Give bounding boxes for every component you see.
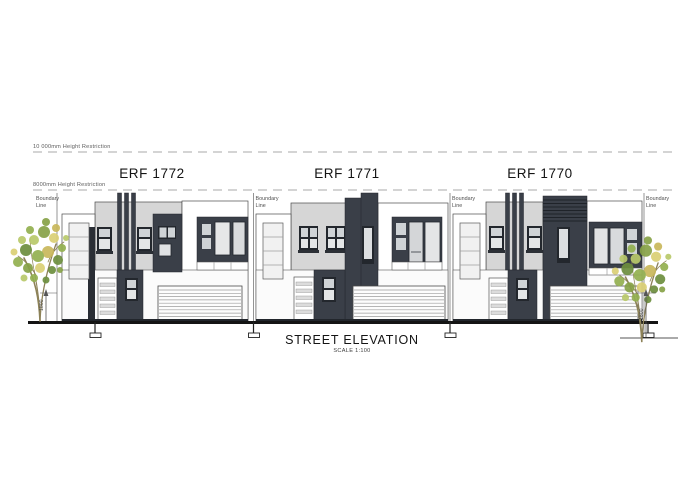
upper-window — [488, 226, 505, 253]
scale-label: SCALE 1:100 — [333, 348, 370, 354]
height-restriction-8000-label: 8000mm Height Restriction — [33, 182, 105, 188]
height-restriction-8000: 8000mm Height Restriction — [33, 182, 672, 190]
height-restriction-10000: 10 000mm Height Restriction — [33, 144, 672, 152]
boundary-line-label: Boundary — [452, 196, 475, 202]
boundary-peg — [249, 322, 260, 338]
erf-label-1770: ERF 1770 — [507, 166, 573, 181]
ground-floor-panel — [314, 270, 345, 321]
garage-door — [158, 286, 242, 320]
dimension-left: 1800 — [39, 289, 57, 321]
charcoal-feature-panel — [153, 214, 182, 272]
entry-door — [489, 278, 508, 321]
tall-window — [263, 223, 283, 279]
entry-door — [98, 278, 117, 321]
garage-door — [353, 286, 445, 320]
boundary-line-right: Boundary Line — [644, 193, 669, 332]
title-block: STREET ELEVATION SCALE 1:100 — [285, 333, 419, 354]
window-box — [197, 217, 248, 270]
boundary-line-label: Line — [452, 203, 462, 209]
garage-door — [550, 286, 638, 320]
ground-floor-panel — [508, 270, 537, 321]
unit-erf-1770 — [453, 193, 642, 323]
upper-window-pair — [298, 226, 319, 253]
upper-window — [136, 227, 153, 254]
upper-window-pair — [325, 226, 346, 253]
erf-label-1772: ERF 1772 — [119, 166, 185, 181]
vertical-cladding-stripes — [506, 193, 524, 270]
window-box — [392, 217, 442, 270]
boundary-peg — [445, 322, 456, 338]
height-restriction-10000-label: 10 000mm Height Restriction — [33, 144, 111, 150]
dimension-label: 1800 — [39, 299, 45, 311]
boundary-line-label: Boundary — [256, 196, 279, 202]
boundary-line-label: Line — [646, 203, 656, 209]
elevation-drawing: 10 000mm Height Restriction 8000mm Heigh… — [0, 0, 700, 495]
ground-floor-panel — [117, 270, 143, 321]
upper-window — [96, 227, 113, 254]
boundary-peg — [90, 322, 101, 338]
foliage — [11, 218, 70, 284]
erf-label-1771: ERF 1771 — [314, 166, 380, 181]
unit-erf-1771 — [256, 193, 448, 323]
elevation-sheet: 10 000mm Height Restriction 8000mm Heigh… — [0, 0, 700, 495]
dimension-label: 1800 — [639, 308, 645, 320]
tall-window — [69, 223, 89, 279]
upper-window — [526, 226, 543, 253]
boundary-line-label: Line — [36, 203, 46, 209]
street-elevation-title: STREET ELEVATION — [285, 333, 419, 347]
vertical-cladding-stripes — [118, 193, 136, 270]
boundary-line-label: Boundary — [36, 196, 59, 202]
unit-erf-1772 — [62, 193, 248, 323]
tall-window — [460, 223, 480, 279]
boundary-peg — [643, 322, 654, 338]
boundary-line-label: Line — [256, 203, 266, 209]
entry-door — [294, 277, 314, 321]
boundary-line-label: Boundary — [646, 196, 669, 202]
